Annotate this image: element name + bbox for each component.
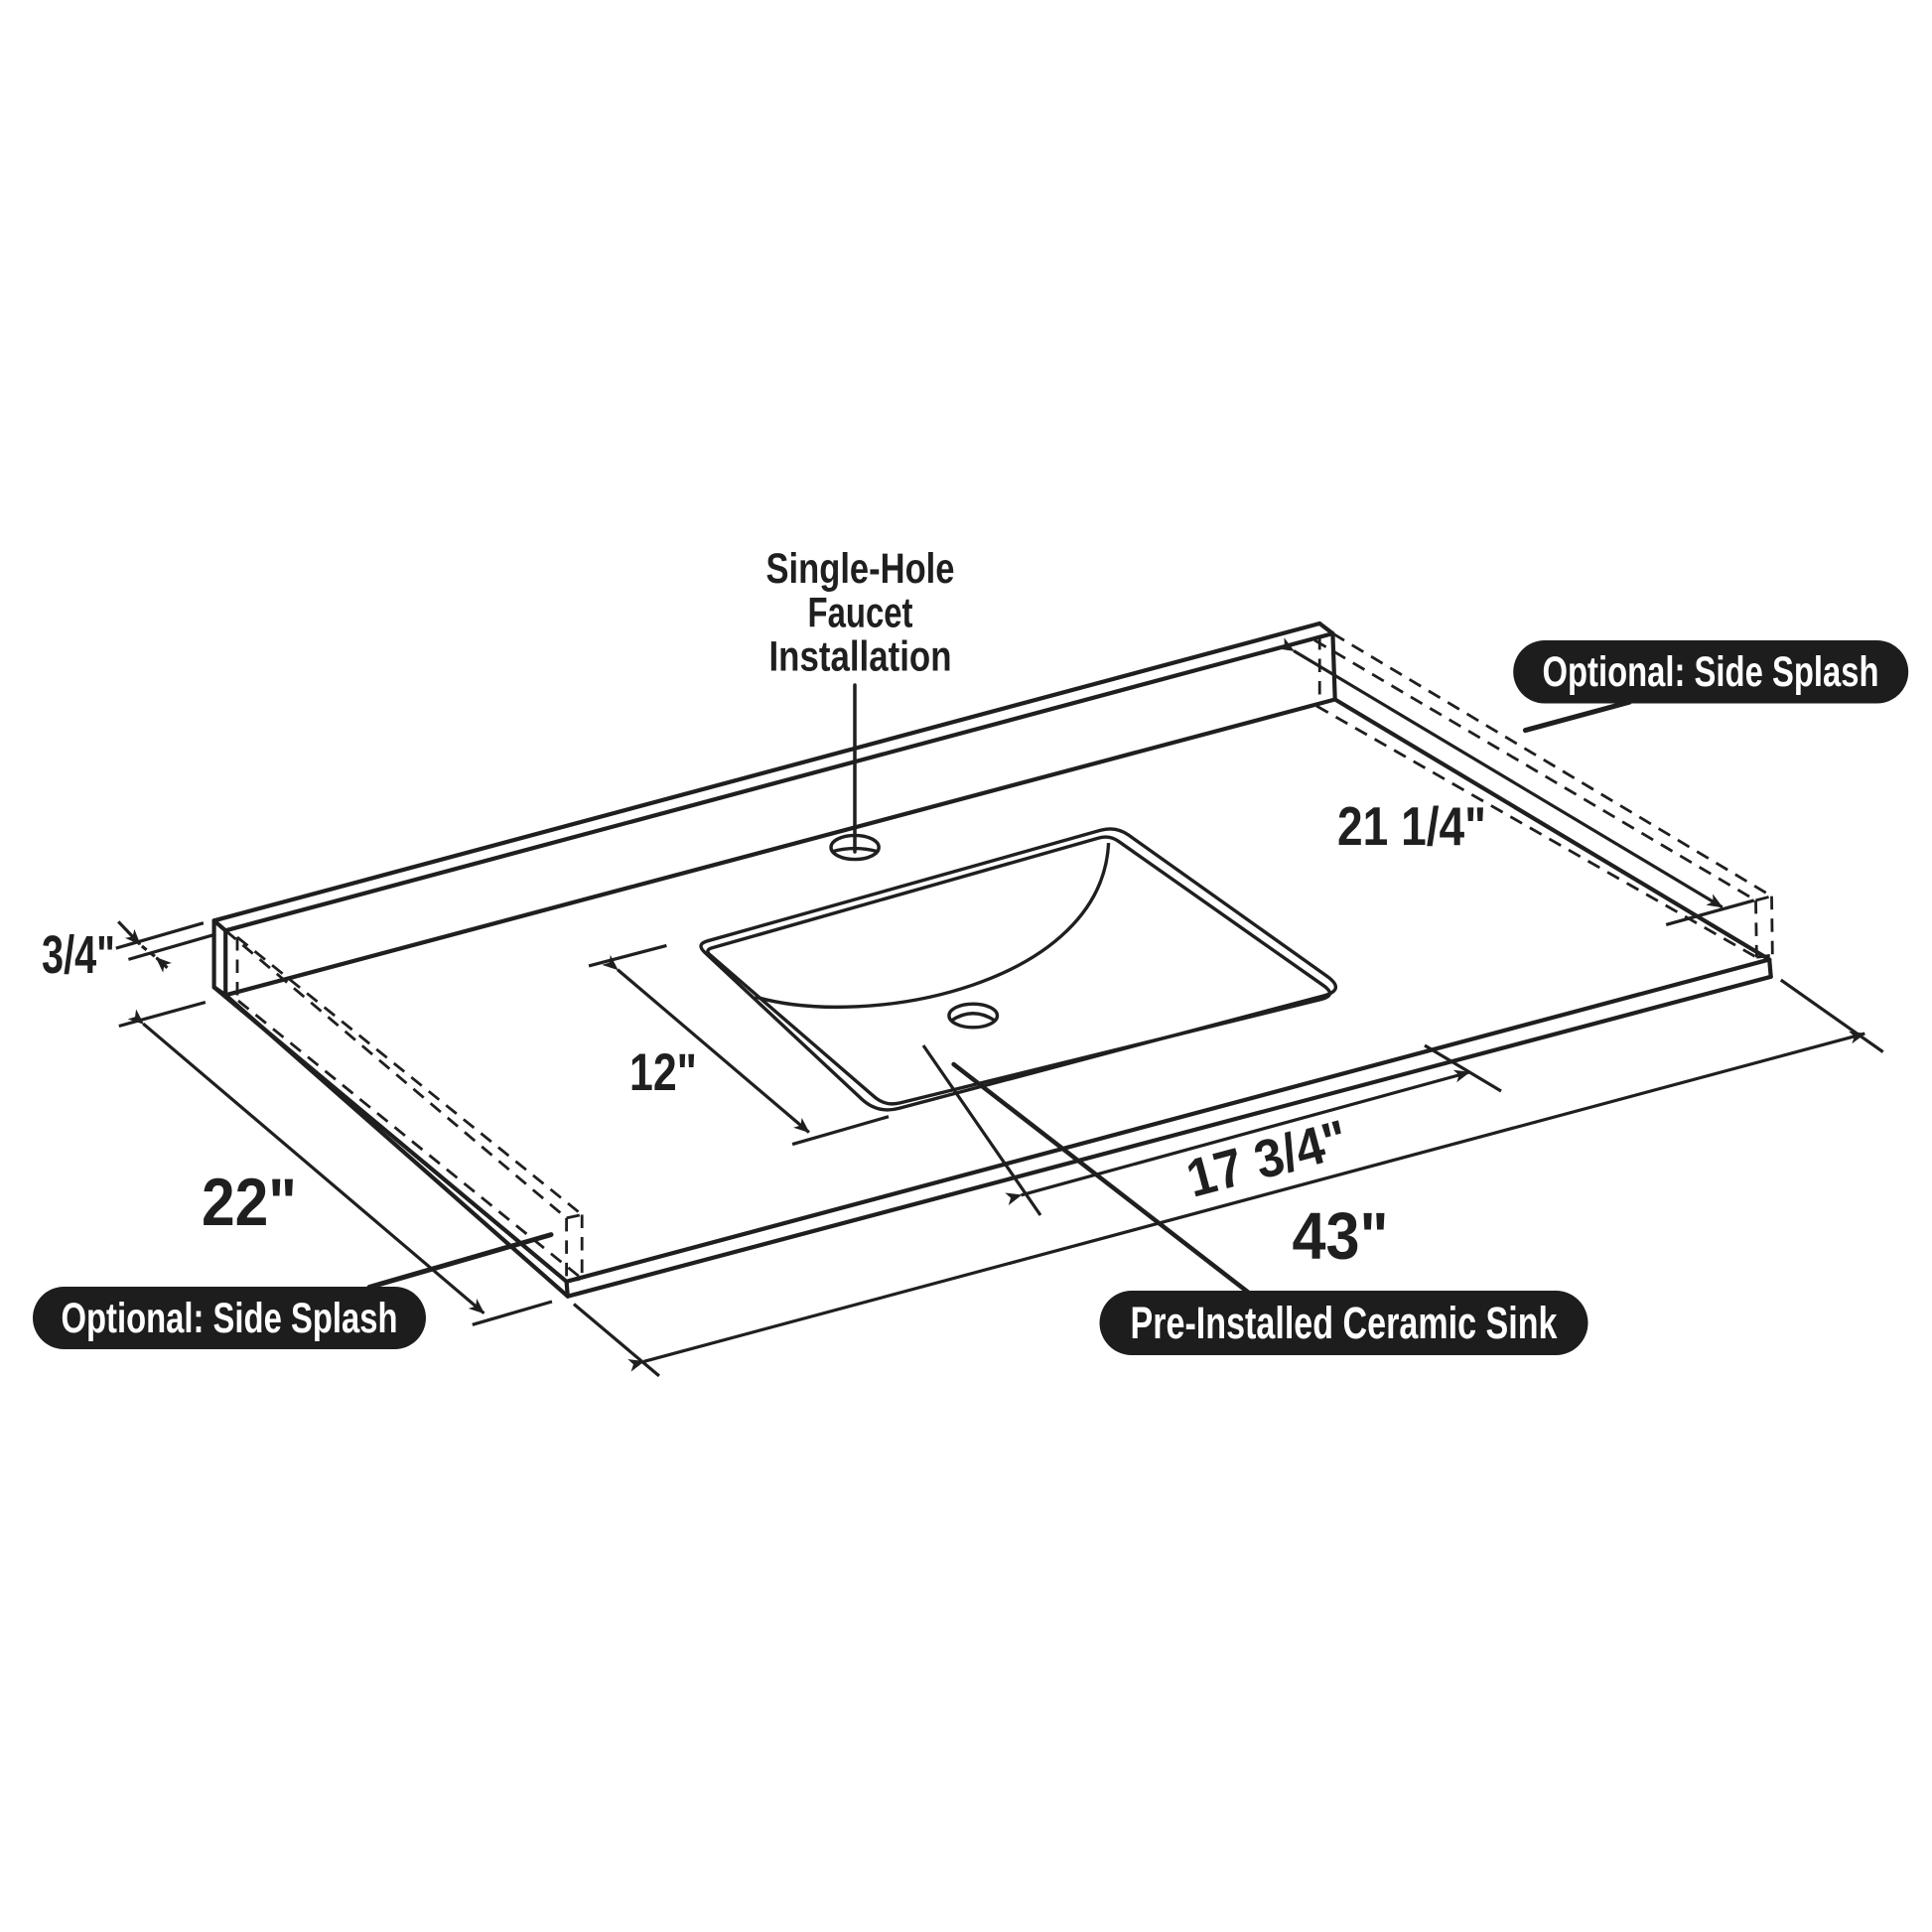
svg-text:Single-Hole: Single-Hole (766, 545, 955, 593)
svg-text:Optional: Side Splash: Optional: Side Splash (62, 1295, 398, 1342)
svg-text:43": 43" (1293, 1199, 1389, 1274)
svg-text:12": 12" (629, 1043, 697, 1102)
svg-text:21 1/4": 21 1/4" (1337, 795, 1486, 857)
svg-text:Faucet: Faucet (808, 590, 913, 637)
svg-text:22": 22" (202, 1165, 297, 1240)
svg-text:Pre-Installed Ceramic Sink: Pre-Installed Ceramic Sink (1131, 1298, 1559, 1348)
svg-text:3/4": 3/4" (42, 925, 115, 985)
svg-text:Installation: Installation (769, 633, 952, 681)
svg-text:Optional: Side Splash: Optional: Side Splash (1543, 648, 1879, 696)
